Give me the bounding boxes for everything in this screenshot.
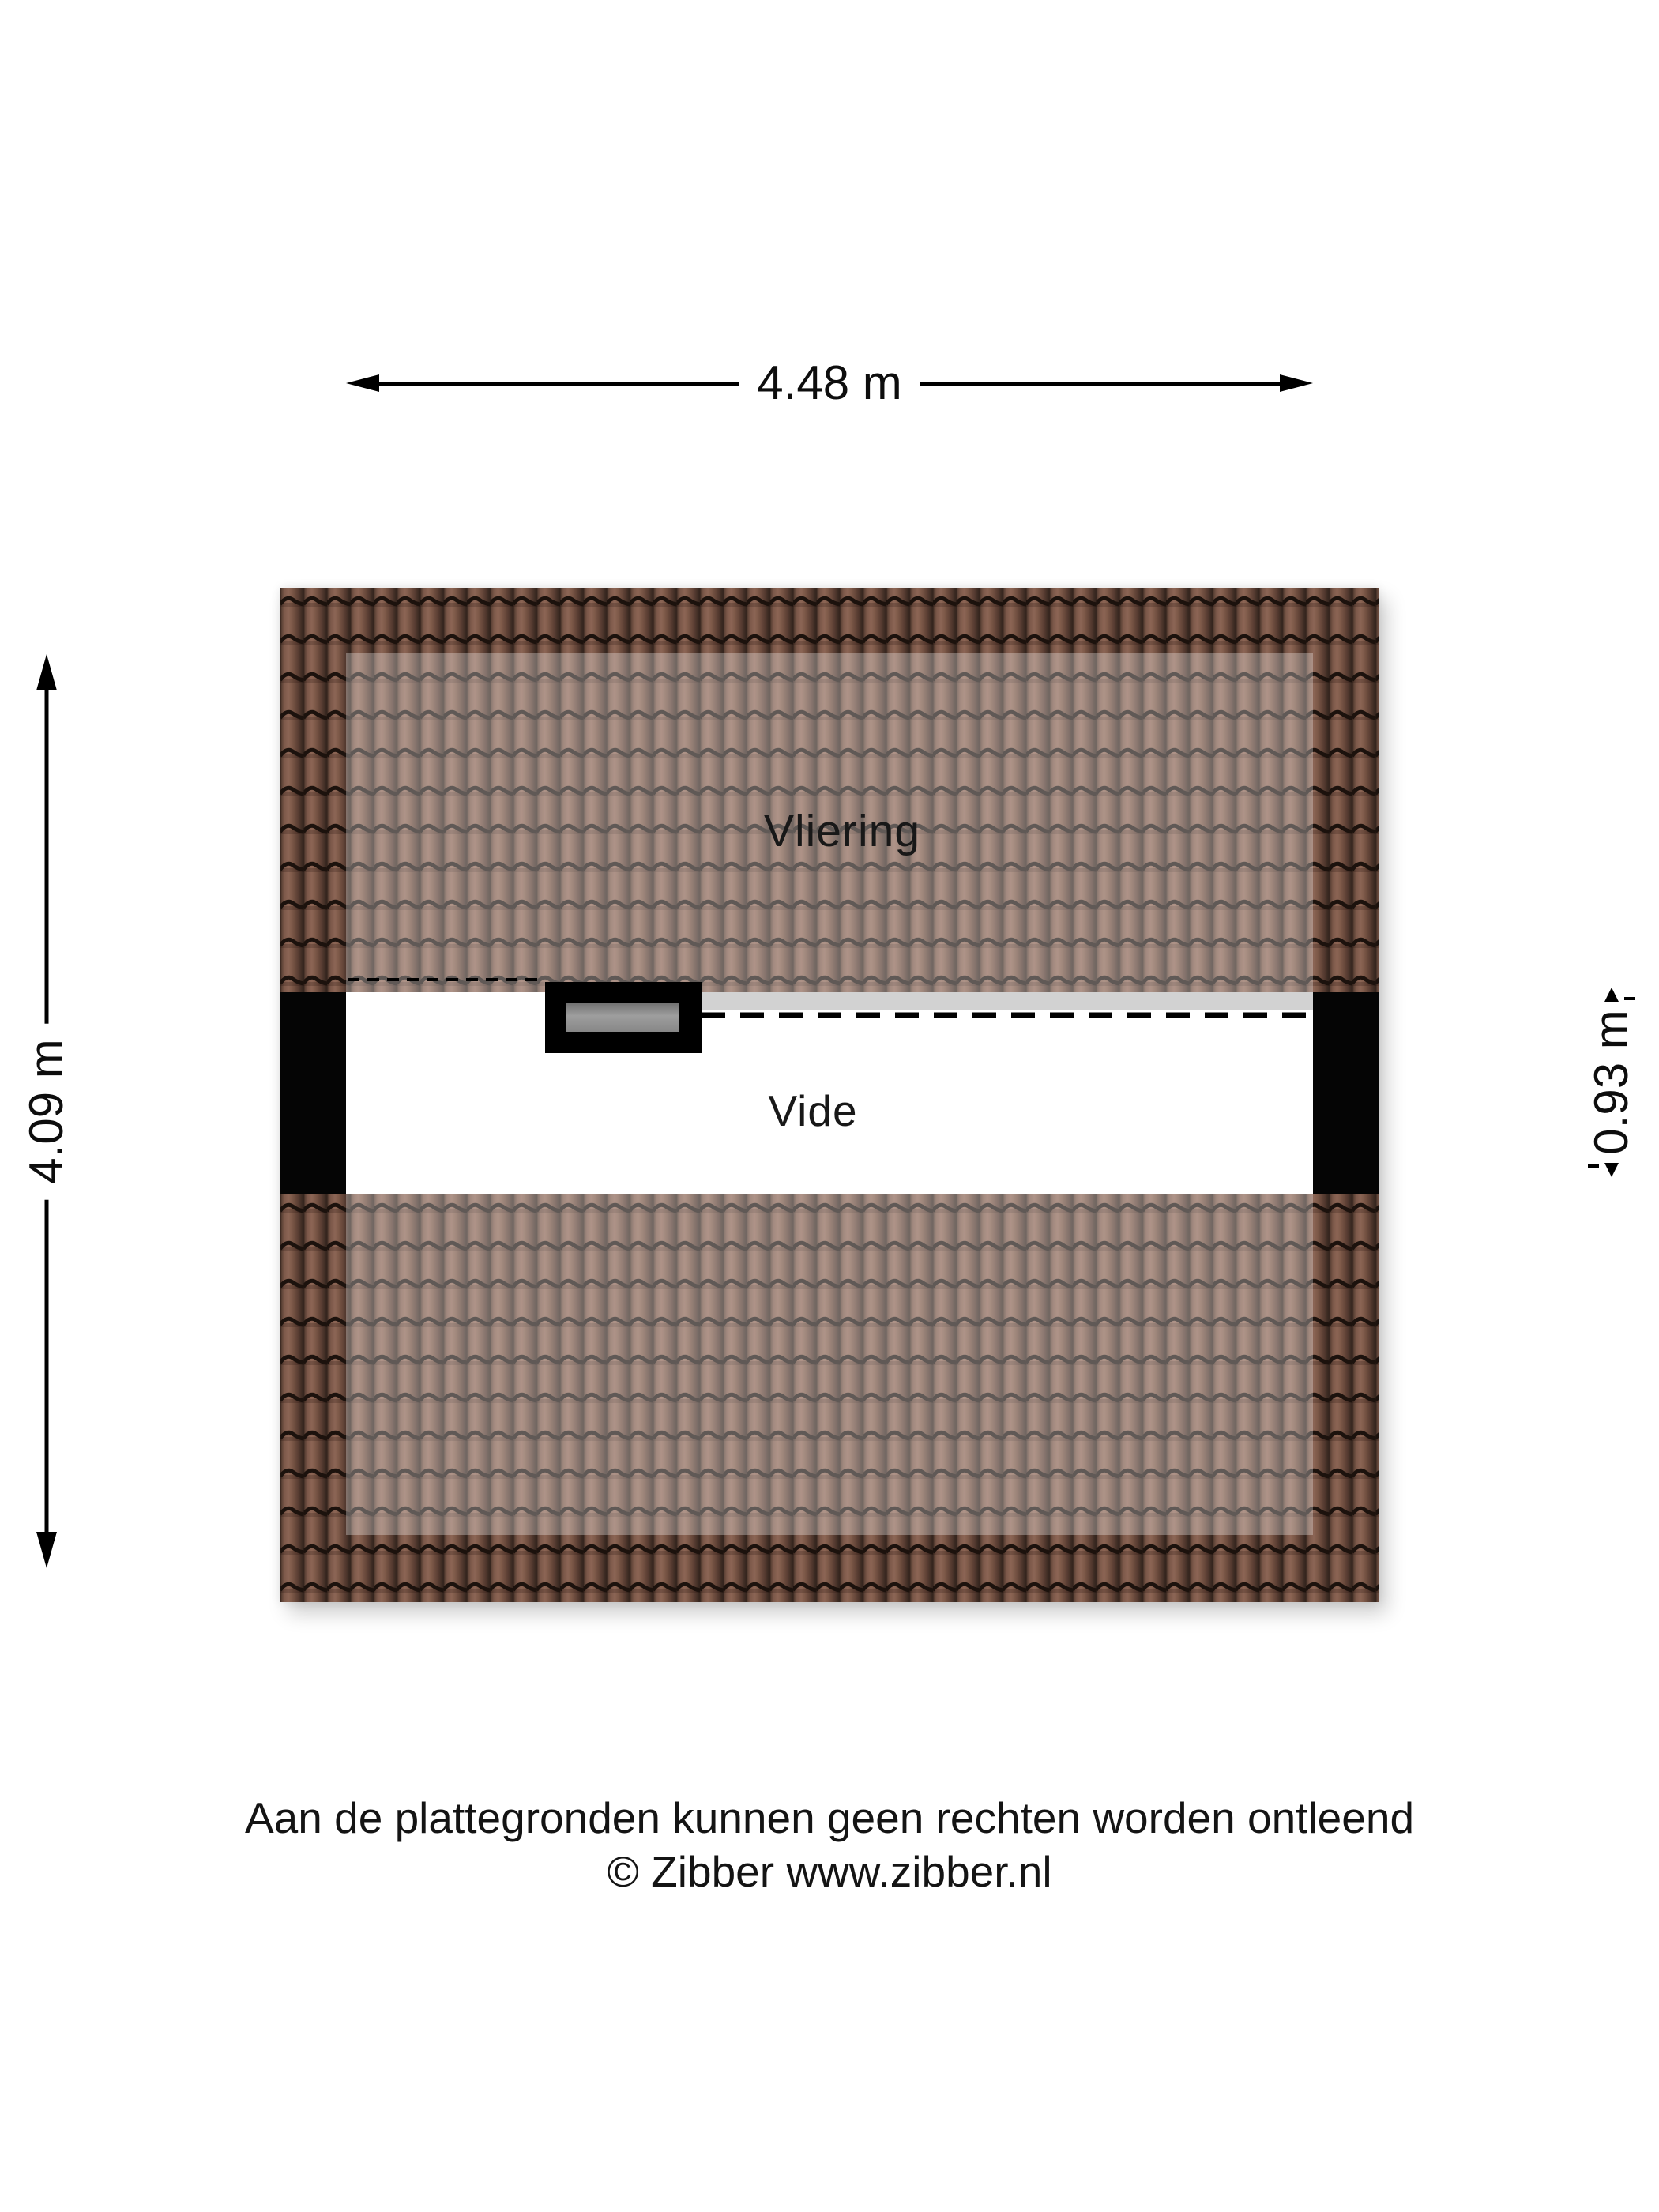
floorplan-page: 4.48 m 4.09 m 0.93 m (0, 0, 1659, 2212)
room-label-vliering: Vliering (684, 807, 1000, 855)
room-label-vide: Vide (655, 1087, 971, 1134)
dimension-right-value: 0.93 m (1587, 1010, 1636, 1154)
dimension-tick (1624, 997, 1635, 1000)
dimension-right: 0.93 m (1586, 987, 1637, 1177)
arrowhead-up-icon (1604, 987, 1619, 1002)
dimension-tick (1588, 1164, 1599, 1168)
dimension-top: 4.48 m (346, 359, 1313, 408)
left-wall (280, 992, 346, 1194)
dimension-left: 4.09 m (21, 654, 72, 1568)
footer: Aan de plattegronden kunnen geen rechten… (0, 1791, 1659, 1898)
copyright-text: © Zibber www.zibber.nl (0, 1845, 1659, 1898)
lower-roof-area (346, 1194, 1313, 1535)
right-wall (1313, 992, 1379, 1194)
arrowhead-down-icon (36, 1532, 57, 1568)
arrowhead-left-icon (346, 374, 379, 392)
arrowhead-right-icon (1280, 374, 1313, 392)
dimension-line (379, 382, 739, 386)
dimension-line (920, 382, 1280, 386)
floor-strip (702, 992, 1313, 1010)
roof-window-glass (566, 1003, 679, 1032)
dimension-left-value: 4.09 m (22, 1023, 71, 1199)
dimension-top-value: 4.48 m (757, 359, 901, 408)
disclaimer-text: Aan de plattegronden kunnen geen rechten… (0, 1791, 1659, 1845)
arrowhead-down-icon (1604, 1163, 1619, 1177)
